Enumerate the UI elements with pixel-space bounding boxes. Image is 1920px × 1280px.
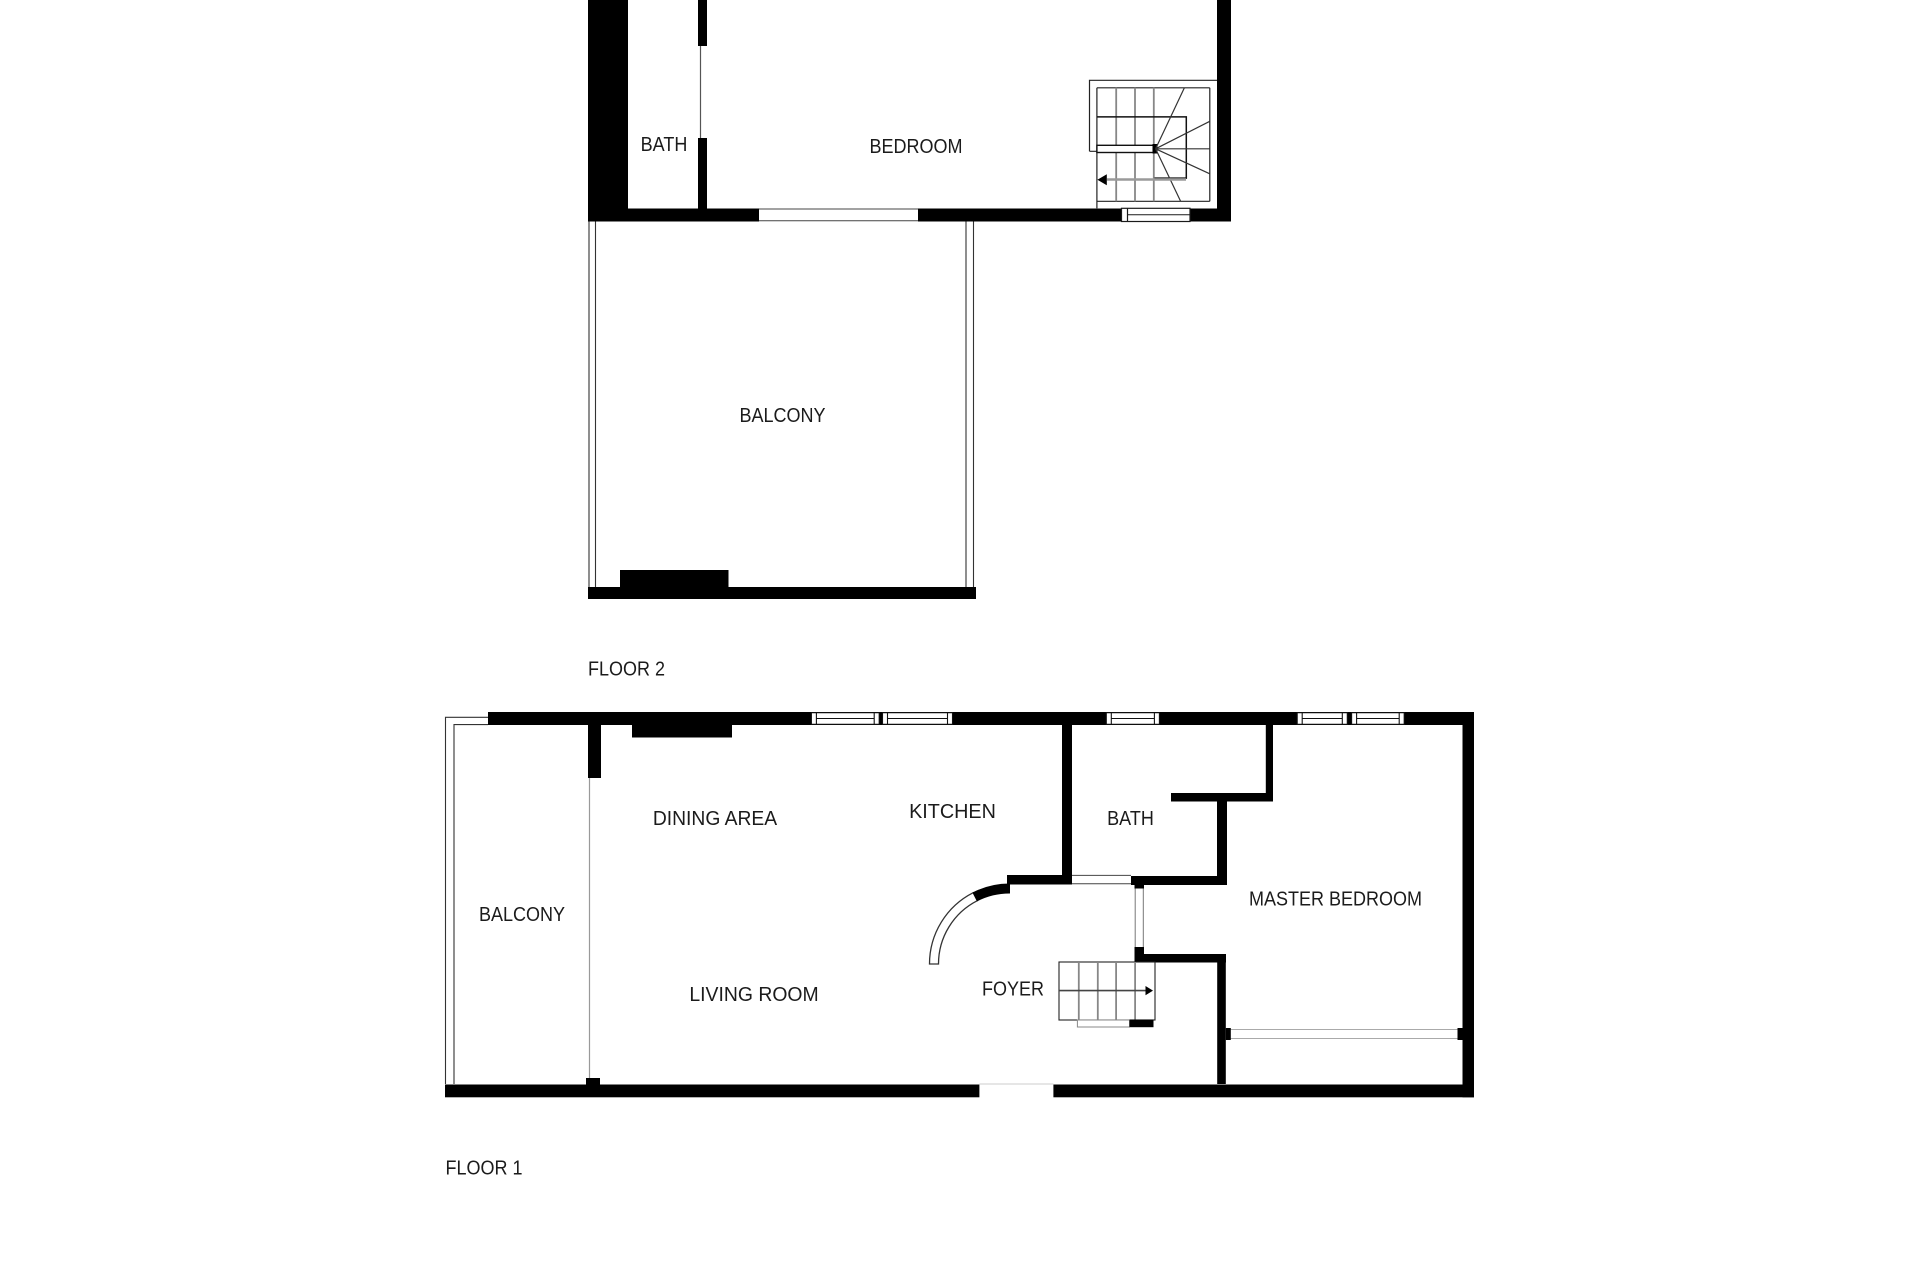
svg-text:FLOOR 2: FLOOR 2 — [588, 659, 665, 681]
svg-text:BATH: BATH — [1107, 808, 1154, 830]
svg-text:BALCONY: BALCONY — [740, 405, 826, 427]
svg-text:MASTER BEDROOM: MASTER BEDROOM — [1249, 889, 1422, 911]
svg-text:LIVING ROOM: LIVING ROOM — [689, 984, 818, 1006]
svg-text:BEDROOM: BEDROOM — [870, 136, 963, 158]
svg-text:BATH: BATH — [641, 134, 688, 156]
svg-text:FOYER: FOYER — [982, 979, 1044, 1001]
svg-text:FLOOR 1: FLOOR 1 — [446, 1158, 523, 1180]
svg-text:KITCHEN: KITCHEN — [909, 801, 996, 823]
svg-text:BALCONY: BALCONY — [479, 904, 565, 926]
svg-text:DINING AREA: DINING AREA — [653, 808, 778, 830]
